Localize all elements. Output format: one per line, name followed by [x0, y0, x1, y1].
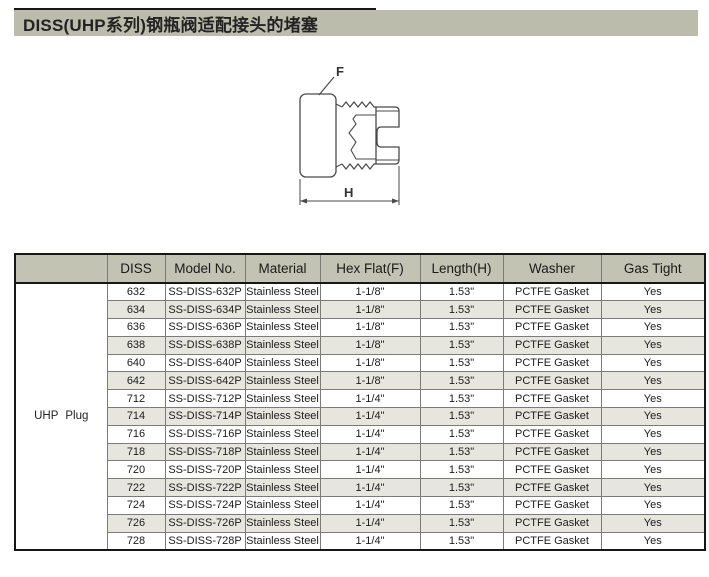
cell-material: Stainless Steel — [245, 390, 320, 408]
cell-hex-flat: 1-1/8" — [320, 283, 420, 301]
cell-hex-flat: 1-1/8" — [320, 301, 420, 319]
cell-model-no: SS-DISS-714P — [165, 408, 245, 426]
page: DISS(UHP系列)钢瓶阀适配接头的堵塞 F H — [0, 0, 709, 577]
cell-diss: 714 — [107, 408, 165, 426]
cell-diss: 726 — [107, 514, 165, 532]
cell-length: 1.53" — [420, 283, 503, 301]
header-material: Material — [245, 254, 320, 283]
cell-diss: 638 — [107, 336, 165, 354]
table-row: 720 SS-DISS-720P Stainless Steel 1-1/4" … — [15, 461, 705, 479]
cell-model-no: SS-DISS-728P — [165, 532, 245, 550]
cell-length: 1.53" — [420, 301, 503, 319]
cell-material: Stainless Steel — [245, 479, 320, 497]
cell-diss: 724 — [107, 497, 165, 515]
plug-end-cap — [376, 107, 399, 164]
cell-material: Stainless Steel — [245, 425, 320, 443]
cell-washer: PCTFE Gasket — [503, 283, 601, 301]
table-row: 636 SS-DISS-636P Stainless Steel 1-1/8" … — [15, 319, 705, 337]
cell-gas-tight: Yes — [601, 354, 705, 372]
cell-washer: PCTFE Gasket — [503, 425, 601, 443]
cell-washer: PCTFE Gasket — [503, 443, 601, 461]
cell-hex-flat: 1-1/4" — [320, 532, 420, 550]
cell-washer: PCTFE Gasket — [503, 497, 601, 515]
cell-diss: 728 — [107, 532, 165, 550]
cell-gas-tight: Yes — [601, 425, 705, 443]
header-model-no: Model No. — [165, 254, 245, 283]
cell-hex-flat: 1-1/4" — [320, 408, 420, 426]
cell-hex-flat: 1-1/4" — [320, 390, 420, 408]
cell-model-no: SS-DISS-724P — [165, 497, 245, 515]
cell-gas-tight: Yes — [601, 532, 705, 550]
cell-model-no: SS-DISS-634P — [165, 301, 245, 319]
cell-model-no: SS-DISS-712P — [165, 390, 245, 408]
cell-washer: PCTFE Gasket — [503, 390, 601, 408]
spec-table: DISS Model No. Material Hex Flat(F) Leng… — [14, 253, 706, 551]
cell-gas-tight: Yes — [601, 301, 705, 319]
cell-length: 1.53" — [420, 372, 503, 390]
cell-diss: 632 — [107, 283, 165, 301]
table-row: 716 SS-DISS-716P Stainless Steel 1-1/4" … — [15, 425, 705, 443]
cell-diss: 636 — [107, 319, 165, 337]
cell-washer: PCTFE Gasket — [503, 372, 601, 390]
cell-length: 1.53" — [420, 461, 503, 479]
cell-gas-tight: Yes — [601, 408, 705, 426]
length-arrow-left — [300, 199, 307, 204]
cell-hex-flat: 1-1/8" — [320, 354, 420, 372]
cell-model-no: SS-DISS-636P — [165, 319, 245, 337]
cell-material: Stainless Steel — [245, 443, 320, 461]
cell-washer: PCTFE Gasket — [503, 514, 601, 532]
cell-material: Stainless Steel — [245, 532, 320, 550]
cell-diss: 716 — [107, 425, 165, 443]
table-row: 718 SS-DISS-718P Stainless Steel 1-1/4" … — [15, 443, 705, 461]
cell-length: 1.53" — [420, 479, 503, 497]
length-dimension-label: H — [344, 185, 353, 200]
cell-washer: PCTFE Gasket — [503, 479, 601, 497]
header-hex-flat: Hex Flat(F) — [320, 254, 420, 283]
table-header-row: DISS Model No. Material Hex Flat(F) Leng… — [15, 254, 705, 283]
cell-gas-tight: Yes — [601, 283, 705, 301]
length-arrow-right — [392, 199, 399, 204]
cell-length: 1.53" — [420, 336, 503, 354]
cell-model-no: SS-DISS-716P — [165, 425, 245, 443]
plug-end-cap-rims — [376, 111, 399, 160]
cell-hex-flat: 1-1/8" — [320, 319, 420, 337]
corner-cell — [15, 254, 107, 283]
plug-threads-top — [342, 102, 376, 107]
cell-length: 1.53" — [420, 408, 503, 426]
cell-diss: 718 — [107, 443, 165, 461]
cell-material: Stainless Steel — [245, 319, 320, 337]
cell-model-no: SS-DISS-720P — [165, 461, 245, 479]
cell-model-no: SS-DISS-718P — [165, 443, 245, 461]
cell-hex-flat: 1-1/4" — [320, 425, 420, 443]
cell-hex-flat: 1-1/4" — [320, 514, 420, 532]
cell-hex-flat: 1-1/4" — [320, 443, 420, 461]
cell-length: 1.53" — [420, 354, 503, 372]
group-label-cell: UHP Plug — [15, 283, 107, 550]
cell-model-no: SS-DISS-722P — [165, 479, 245, 497]
flat-leader-line — [319, 77, 334, 95]
cell-hex-flat: 1-1/4" — [320, 497, 420, 515]
table-row: 642 SS-DISS-642P Stainless Steel 1-1/8" … — [15, 372, 705, 390]
cell-washer: PCTFE Gasket — [503, 461, 601, 479]
plug-diagram-svg: F H — [292, 58, 432, 213]
cell-length: 1.53" — [420, 390, 503, 408]
cell-material: Stainless Steel — [245, 408, 320, 426]
header-washer: Washer — [503, 254, 601, 283]
cell-diss: 642 — [107, 372, 165, 390]
plug-threads-bottom — [342, 164, 376, 169]
table-row: 726 SS-DISS-726P Stainless Steel 1-1/4" … — [15, 514, 705, 532]
cell-material: Stainless Steel — [245, 461, 320, 479]
cell-gas-tight: Yes — [601, 443, 705, 461]
table-row: 728 SS-DISS-728P Stainless Steel 1-1/4" … — [15, 532, 705, 550]
cell-diss: 720 — [107, 461, 165, 479]
cell-diss: 640 — [107, 354, 165, 372]
cell-washer: PCTFE Gasket — [503, 354, 601, 372]
table-row: UHP Plug 632 SS-DISS-632P Stainless Stee… — [15, 283, 705, 301]
plug-inner-section — [349, 115, 376, 159]
table-row: 712 SS-DISS-712P Stainless Steel 1-1/4" … — [15, 390, 705, 408]
cell-model-no: SS-DISS-642P — [165, 372, 245, 390]
plug-steps — [336, 104, 342, 167]
cell-length: 1.53" — [420, 532, 503, 550]
cell-gas-tight: Yes — [601, 372, 705, 390]
table-body: UHP Plug 632 SS-DISS-632P Stainless Stee… — [15, 283, 705, 550]
cell-length: 1.53" — [420, 425, 503, 443]
cell-gas-tight: Yes — [601, 514, 705, 532]
cell-length: 1.53" — [420, 443, 503, 461]
cell-model-no: SS-DISS-638P — [165, 336, 245, 354]
cell-model-no: SS-DISS-726P — [165, 514, 245, 532]
cell-model-no: SS-DISS-632P — [165, 283, 245, 301]
cell-washer: PCTFE Gasket — [503, 532, 601, 550]
cell-washer: PCTFE Gasket — [503, 408, 601, 426]
plug-hex-head — [300, 94, 336, 177]
cell-material: Stainless Steel — [245, 283, 320, 301]
cell-model-no: SS-DISS-640P — [165, 354, 245, 372]
cell-gas-tight: Yes — [601, 479, 705, 497]
table-row: 722 SS-DISS-722P Stainless Steel 1-1/4" … — [15, 479, 705, 497]
table-row: 640 SS-DISS-640P Stainless Steel 1-1/8" … — [15, 354, 705, 372]
cell-diss: 634 — [107, 301, 165, 319]
cell-gas-tight: Yes — [601, 461, 705, 479]
cell-gas-tight: Yes — [601, 497, 705, 515]
cell-material: Stainless Steel — [245, 354, 320, 372]
header-gas-tight: Gas Tight — [601, 254, 705, 283]
cell-washer: PCTFE Gasket — [503, 301, 601, 319]
plug-diagram: F H — [292, 58, 432, 218]
cell-diss: 722 — [107, 479, 165, 497]
cell-hex-flat: 1-1/4" — [320, 461, 420, 479]
cell-washer: PCTFE Gasket — [503, 336, 601, 354]
cell-material: Stainless Steel — [245, 514, 320, 532]
cell-gas-tight: Yes — [601, 336, 705, 354]
page-title: DISS(UHP系列)钢瓶阀适配接头的堵塞 — [23, 11, 318, 36]
cell-length: 1.53" — [420, 497, 503, 515]
cell-length: 1.53" — [420, 514, 503, 532]
cell-material: Stainless Steel — [245, 497, 320, 515]
table-row: 724 SS-DISS-724P Stainless Steel 1-1/4" … — [15, 497, 705, 515]
header-length: Length(H) — [420, 254, 503, 283]
cell-hex-flat: 1-1/8" — [320, 336, 420, 354]
flat-dimension-label: F — [336, 64, 344, 79]
table-row: 638 SS-DISS-638P Stainless Steel 1-1/8" … — [15, 336, 705, 354]
table-row: 634 SS-DISS-634P Stainless Steel 1-1/8" … — [15, 301, 705, 319]
cell-washer: PCTFE Gasket — [503, 319, 601, 337]
cell-material: Stainless Steel — [245, 301, 320, 319]
title-band: DISS(UHP系列)钢瓶阀适配接头的堵塞 — [14, 10, 698, 36]
cell-length: 1.53" — [420, 319, 503, 337]
cell-hex-flat: 1-1/8" — [320, 372, 420, 390]
cell-hex-flat: 1-1/4" — [320, 479, 420, 497]
cell-material: Stainless Steel — [245, 372, 320, 390]
table-row: 714 SS-DISS-714P Stainless Steel 1-1/4" … — [15, 408, 705, 426]
header-diss: DISS — [107, 254, 165, 283]
cell-gas-tight: Yes — [601, 390, 705, 408]
cell-diss: 712 — [107, 390, 165, 408]
cell-gas-tight: Yes — [601, 319, 705, 337]
cell-material: Stainless Steel — [245, 336, 320, 354]
